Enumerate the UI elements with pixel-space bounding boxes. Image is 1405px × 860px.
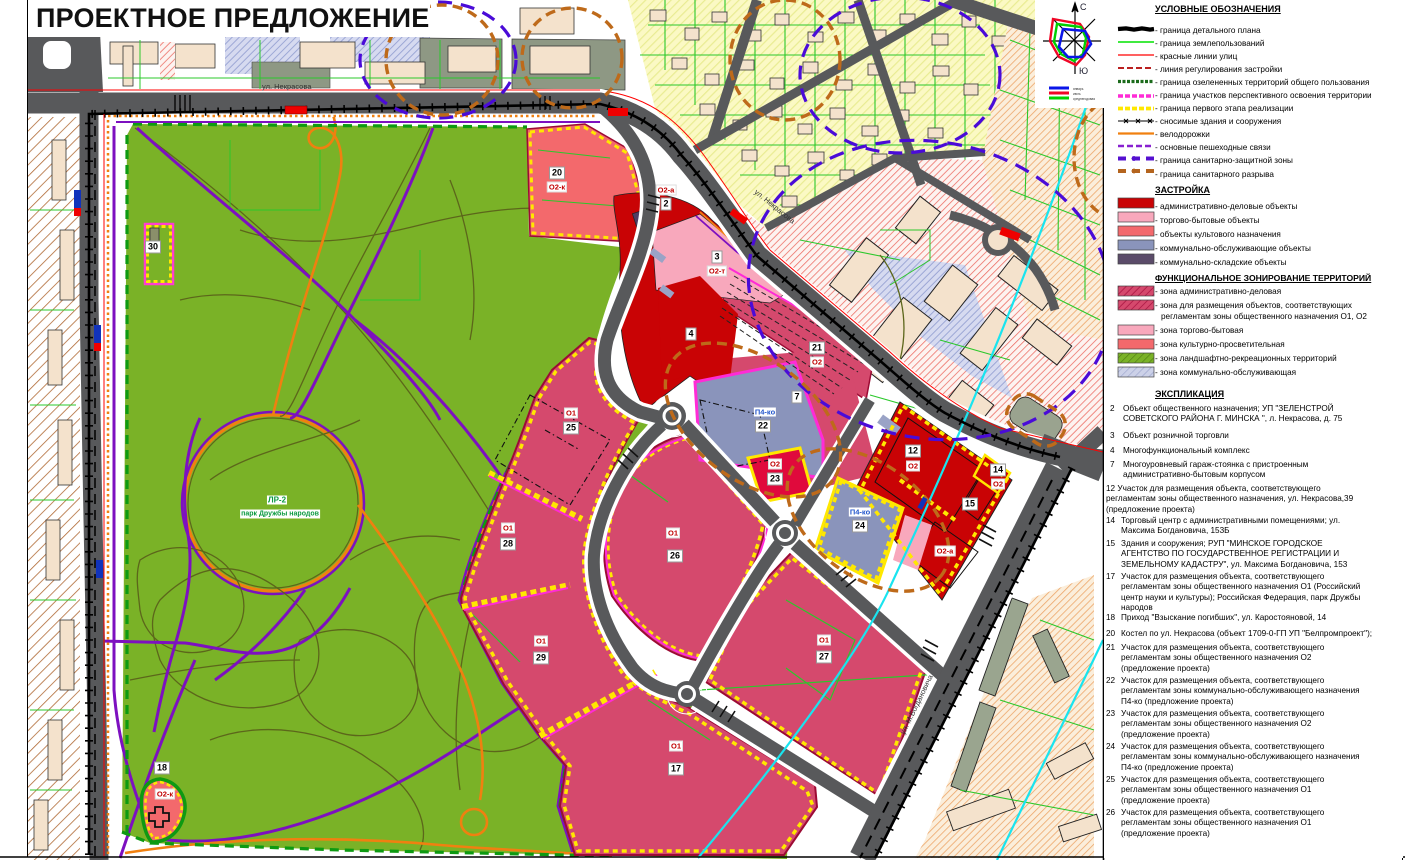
svg-text:С: С <box>1080 2 1087 12</box>
svg-text:июль: июль <box>1073 92 1081 96</box>
svg-text:Ю: Ю <box>1079 66 1088 76</box>
svg-text:январь: январь <box>1073 87 1084 91</box>
svg-text:среднегодовая: среднегодовая <box>1073 97 1095 101</box>
